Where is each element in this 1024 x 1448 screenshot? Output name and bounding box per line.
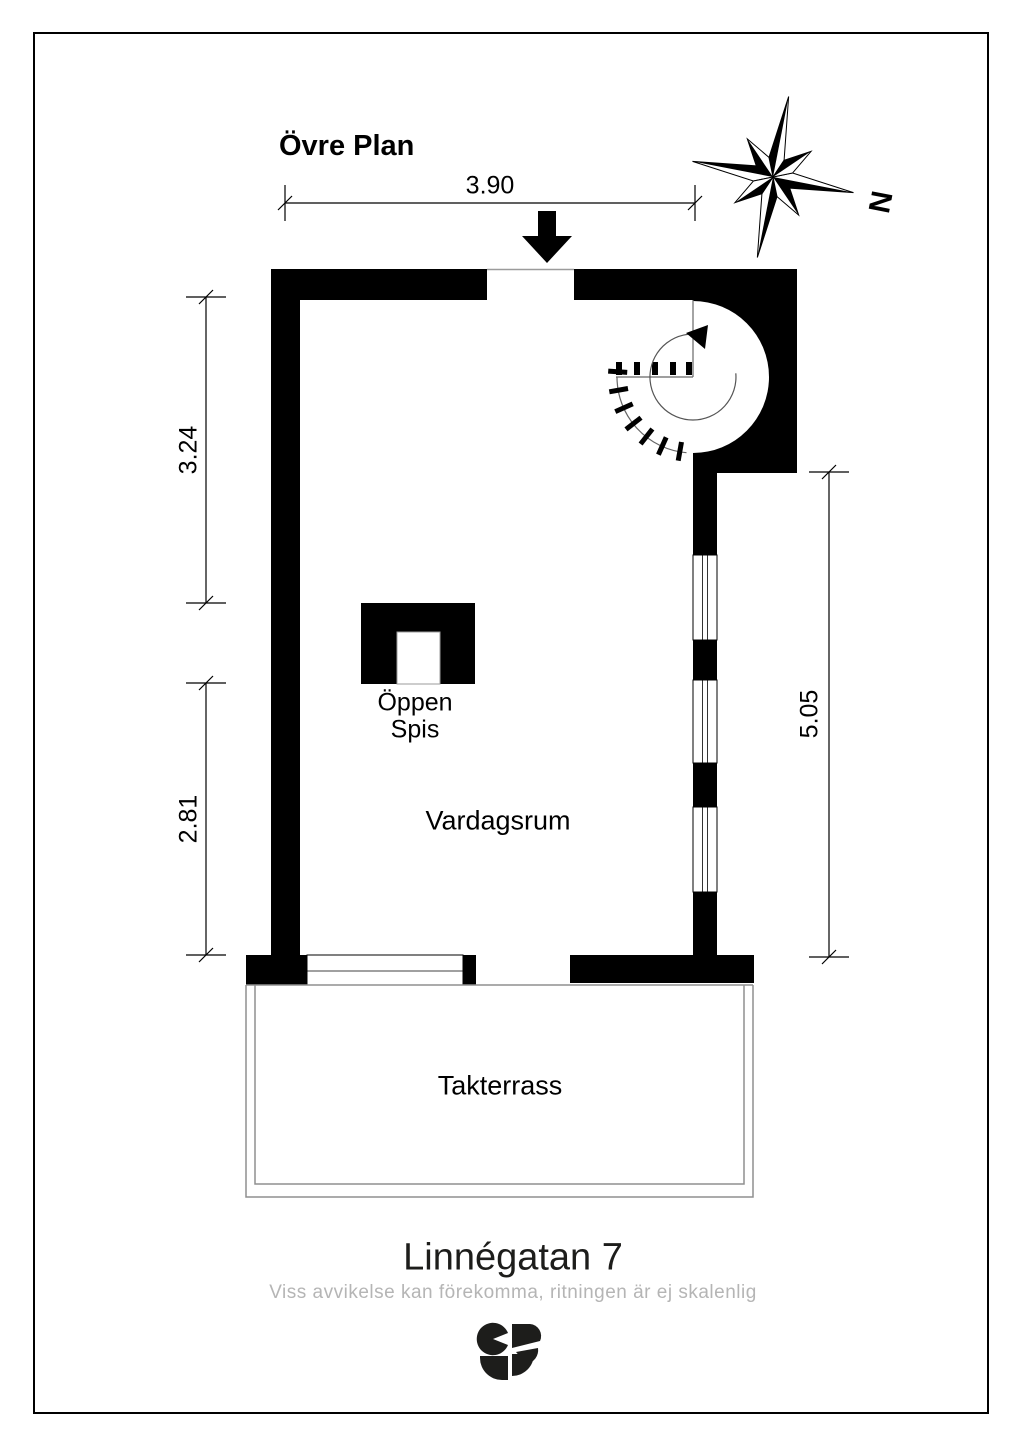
room-label-living-room: Vardagsrum bbox=[425, 806, 570, 837]
room-label-roof-terrace: Takterrass bbox=[438, 1071, 563, 1102]
floor-title: Övre Plan bbox=[279, 130, 414, 163]
dimension-left-upper-label: 3.24 bbox=[175, 426, 204, 475]
entrance-arrow-icon bbox=[522, 211, 572, 263]
dimension-right-label: 5.05 bbox=[796, 690, 825, 739]
fireplace-label-line2: Spis bbox=[391, 716, 440, 745]
floorplan-page: N Övre Plan 3.90 3.24 2.81 5.05 Öppen Sp… bbox=[0, 0, 1024, 1448]
brand-logo-icon bbox=[477, 1323, 541, 1380]
dimension-left-lower-label: 2.81 bbox=[175, 795, 204, 844]
compass-north-label: N bbox=[861, 188, 898, 216]
floorplan-drawing: N bbox=[0, 0, 1024, 1448]
compass-rose-icon: N bbox=[677, 81, 912, 282]
address-title: Linnégatan 7 bbox=[403, 1237, 623, 1280]
disclaimer-text: Viss avvikelse kan förekomma, ritningen … bbox=[269, 1282, 757, 1304]
fireplace-label-line1: Öppen bbox=[377, 689, 452, 718]
fireplace-opening bbox=[397, 632, 440, 684]
dimension-top-label: 3.90 bbox=[466, 172, 515, 201]
